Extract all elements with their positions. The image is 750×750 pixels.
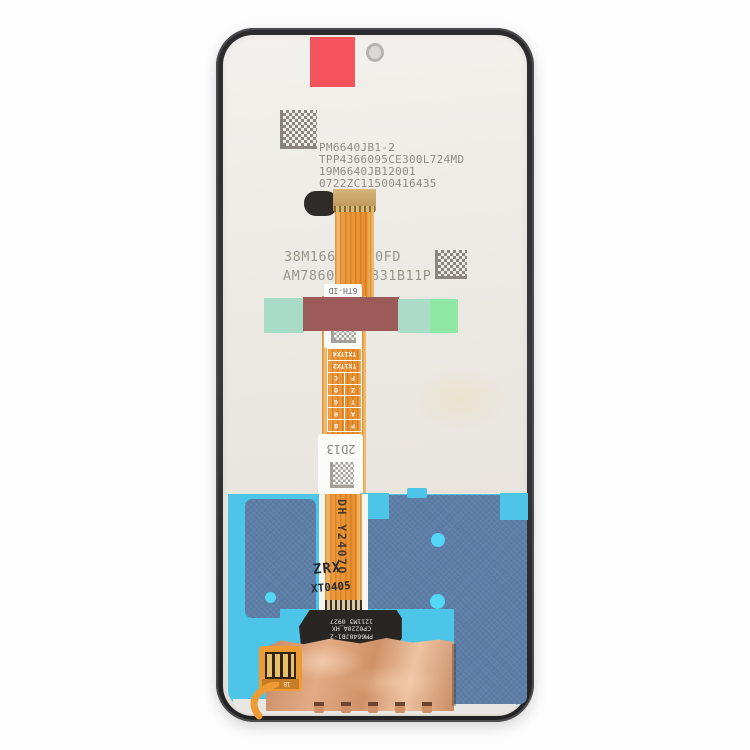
connector-pins	[334, 206, 375, 212]
red-sticker	[310, 37, 355, 87]
top-code-block: PM6640JB1-2TPP4366095CE300L724MD19M6640J…	[319, 106, 464, 190]
flex-grid-cell: H	[328, 408, 345, 419]
flex-grid-cell: C	[328, 373, 345, 384]
black-strip-code-block: PM6640JB1-2CP0220A_HX1211M3 0927	[330, 617, 373, 640]
panel-stain	[400, 358, 520, 440]
datamatrix-mid-icon	[435, 250, 467, 279]
flex-label-2d13-text: 2D13	[322, 442, 360, 456]
cable-loop-icon	[244, 682, 284, 720]
panel-notch-right	[500, 493, 528, 520]
flex-grid-cell: TX1TX4	[328, 349, 361, 360]
mid-code-2-right: 831B11P	[371, 268, 431, 284]
copper-tab	[314, 702, 324, 713]
flex-grid-row: TX1TX2	[328, 360, 361, 372]
mid-code-2-left: AM7860	[283, 268, 335, 284]
flex-test-grid: PBAHTGZDFCTX1TX2TX1TX4	[327, 348, 362, 432]
copper-tab	[368, 702, 378, 713]
tape-mint-left	[264, 298, 304, 333]
flex-grid-cell: Z	[345, 385, 361, 396]
black-strip-code-line: PM6640JB1-2	[330, 632, 373, 640]
gold-pins-icon	[265, 652, 296, 679]
cyan-dot	[430, 594, 445, 609]
flex-grid-row: PB	[328, 419, 361, 431]
copper-tab	[422, 702, 432, 713]
flex-grid-row: ZD	[328, 384, 361, 396]
flex-grid-cell: G	[328, 396, 345, 407]
copper-tab	[395, 702, 405, 713]
flex-grid-cell: P	[345, 420, 361, 431]
copper-edge-shadow	[452, 644, 456, 706]
flex-grid-row: TG	[328, 395, 361, 407]
flex-grid-cell: D	[328, 385, 345, 396]
tape-green-right	[430, 299, 458, 333]
black-strip-code-line: CP0220A_HX	[330, 625, 373, 633]
datamatrix-top-icon	[280, 110, 317, 149]
mid-code-1-left: 38M166	[284, 249, 336, 265]
flex-grid-row: FC	[328, 372, 361, 384]
flex-grid-cell: F	[345, 373, 361, 384]
flex-grid-cell: TX1TX2	[328, 361, 361, 372]
flex-grid-cell: T	[345, 396, 361, 407]
tape-mauve	[303, 297, 399, 331]
flex-grid-cell: B	[328, 420, 345, 431]
copper-tab	[341, 702, 351, 713]
cyan-dot	[265, 592, 276, 603]
black-strip-code-line: 1211M3 0927	[330, 617, 373, 625]
camera-hole-icon	[366, 43, 384, 62]
tape-mint-right	[398, 299, 431, 333]
flex-grid-cell: A	[345, 408, 361, 419]
datamatrix-small-icon	[331, 330, 356, 343]
flex-grid-row: TX1TX4	[328, 349, 361, 360]
adhesive-panel-left	[245, 499, 316, 618]
mid-code-1-right: 0FD	[375, 249, 401, 265]
cyan-dot	[431, 533, 445, 547]
cyan-tab	[407, 488, 427, 498]
product-photo: PM6640JB1-2TPP4366095CE300L724MD19M6640J…	[0, 0, 750, 750]
flex-grid-row: AH	[328, 407, 361, 419]
flex-label-small-text: 6TH-ID	[326, 286, 360, 295]
